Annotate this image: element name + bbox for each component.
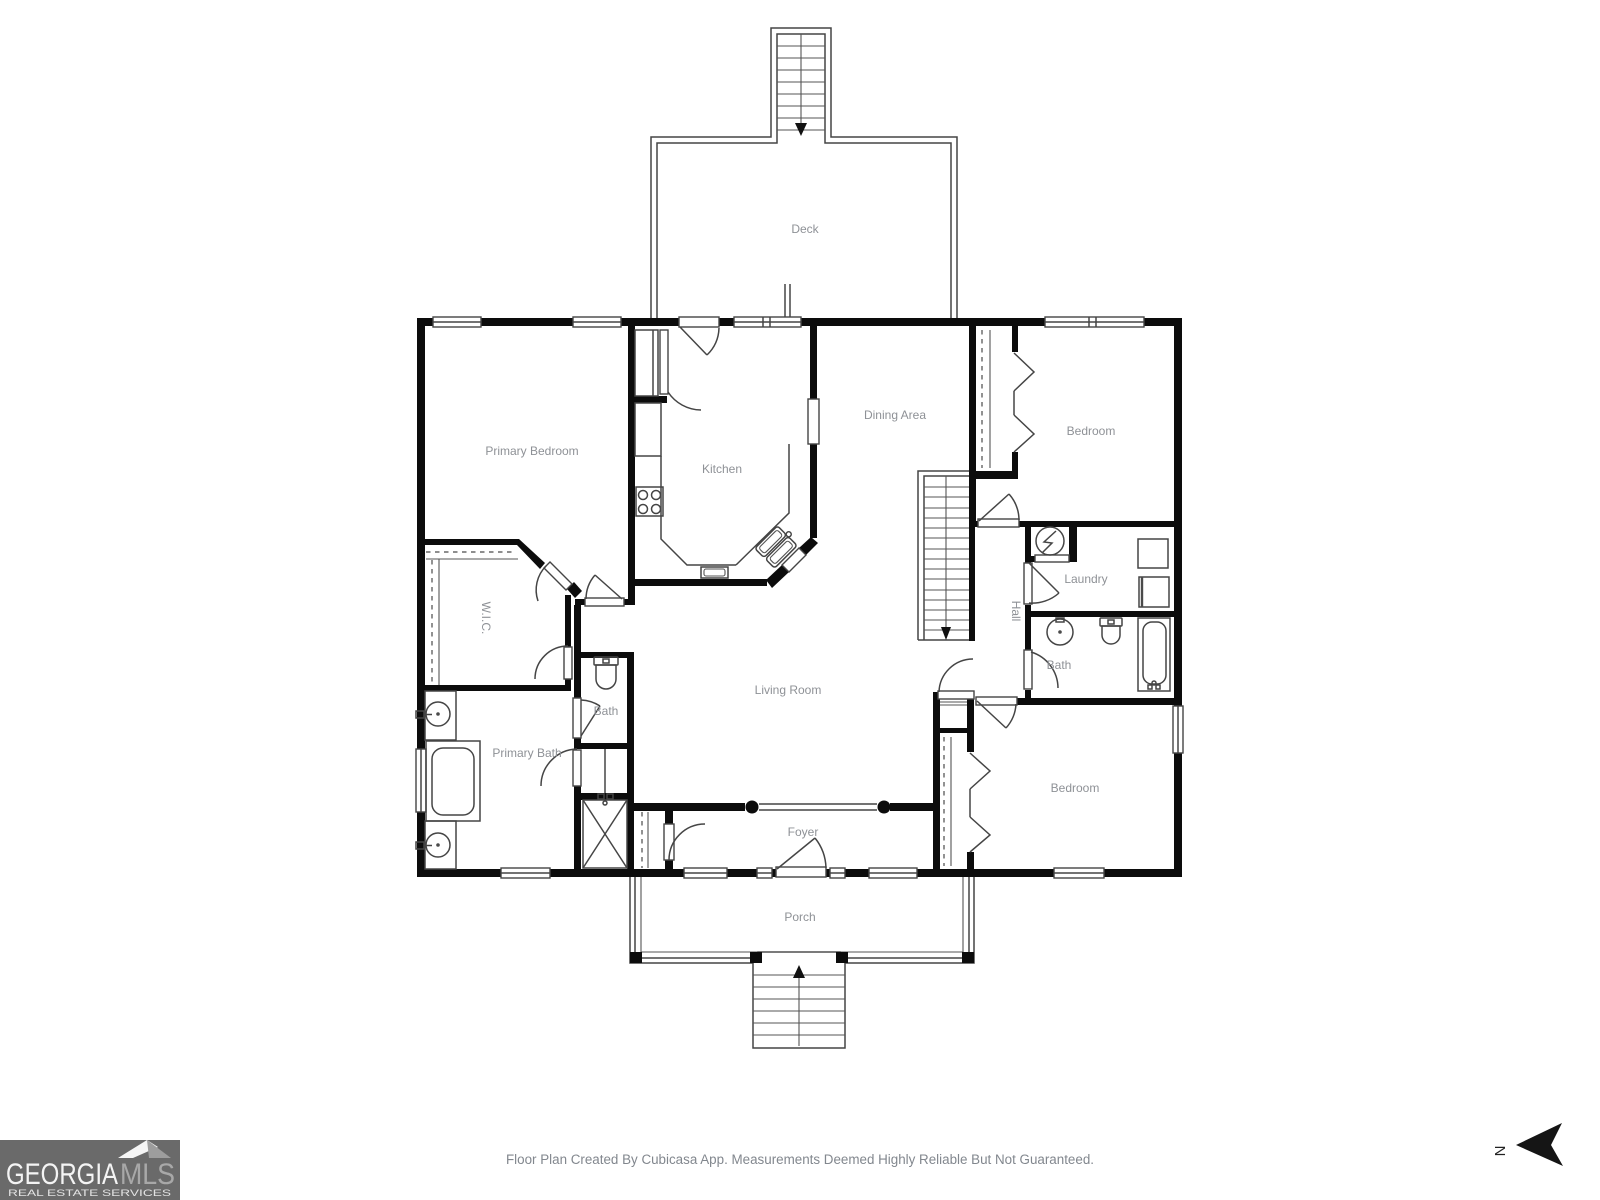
svg-text:Bedroom: Bedroom <box>1067 424 1116 438</box>
svg-text:MLS: MLS <box>120 1158 175 1191</box>
svg-text:N: N <box>1492 1146 1509 1157</box>
svg-text:Bedroom: Bedroom <box>1051 781 1100 795</box>
svg-text:Hall: Hall <box>1009 601 1023 622</box>
svg-text:Dining Area: Dining Area <box>864 408 926 422</box>
svg-text:Bath: Bath <box>594 704 619 718</box>
svg-text:GEORGIA: GEORGIA <box>6 1158 118 1191</box>
svg-text:Bath: Bath <box>1047 658 1072 672</box>
svg-text:W.I.C.: W.I.C. <box>479 602 493 635</box>
svg-text:Deck: Deck <box>791 222 819 236</box>
svg-text:REAL ESTATE SERVICES: REAL ESTATE SERVICES <box>8 1188 171 1198</box>
svg-text:Kitchen: Kitchen <box>702 462 742 476</box>
svg-text:Primary Bath: Primary Bath <box>492 746 561 760</box>
svg-text:Porch: Porch <box>784 910 815 924</box>
svg-text:Foyer: Foyer <box>788 825 819 839</box>
svg-text:Primary Bedroom: Primary Bedroom <box>485 444 578 458</box>
svg-text:Living Room: Living Room <box>755 683 822 697</box>
svg-text:Laundry: Laundry <box>1064 572 1107 586</box>
svg-text:Floor Plan Created By Cubicasa: Floor Plan Created By Cubicasa App. Meas… <box>506 1152 1094 1167</box>
